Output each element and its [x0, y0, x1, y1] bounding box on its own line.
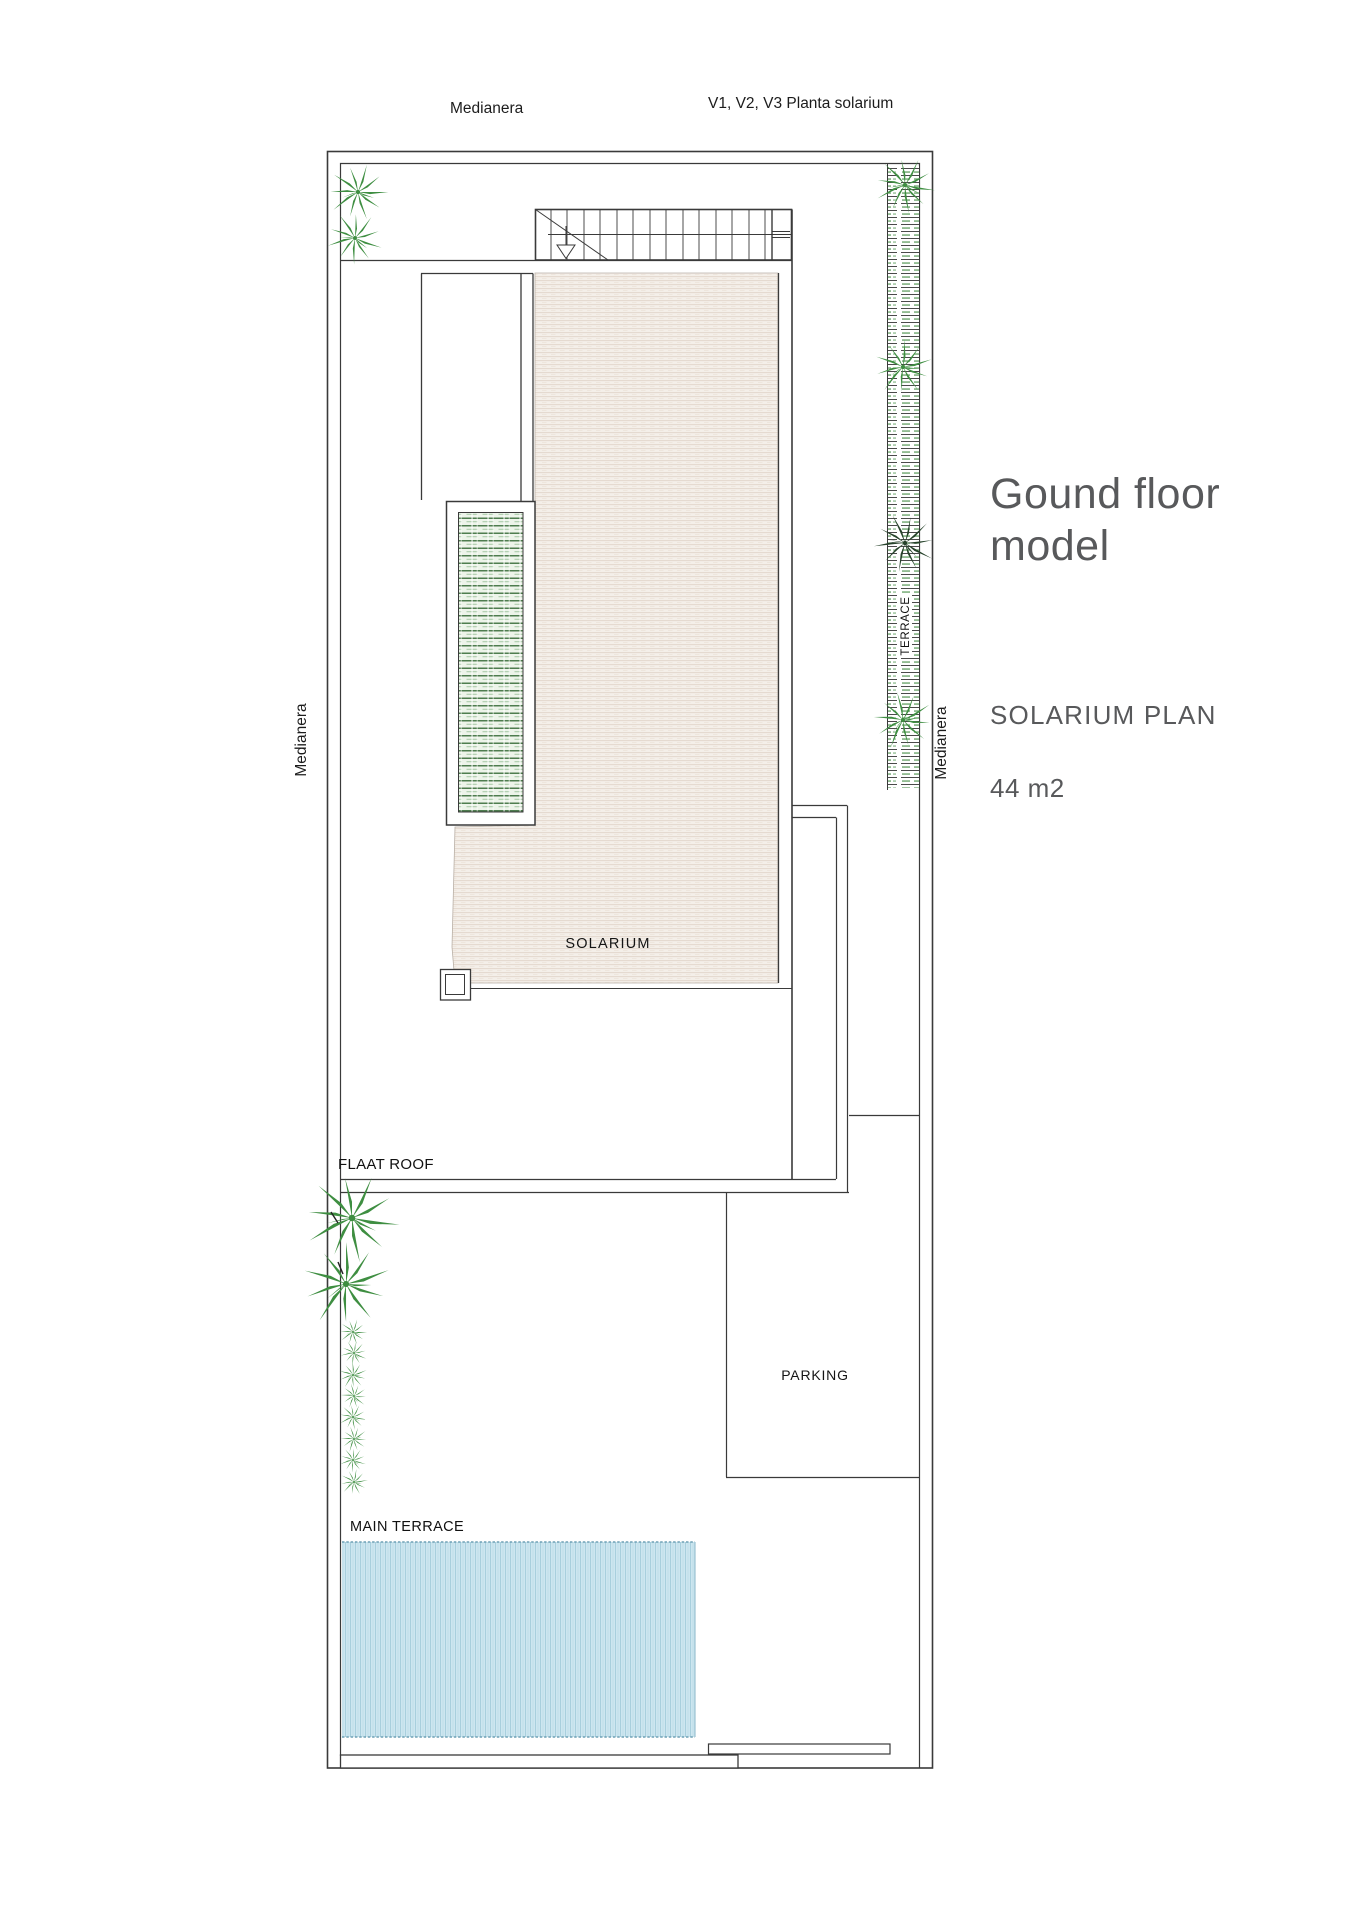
parking-label: PARKING	[781, 1367, 849, 1383]
corner-box	[441, 970, 471, 1001]
solarium-label: SOLARIUM	[565, 936, 650, 952]
stair-arrow-head	[557, 245, 575, 259]
shrub-row	[336, 1319, 372, 1496]
pergola-green-hatch	[459, 513, 524, 813]
plan-area: 44 m2	[990, 773, 1220, 804]
title-line-2: model	[990, 520, 1220, 572]
flat-roof-label: FLAAT ROOF	[338, 1156, 434, 1173]
pool	[342, 1542, 695, 1737]
palm-tree-large-icon	[295, 1232, 401, 1334]
main-terrace-label: MAIN TERRACE	[350, 1519, 464, 1535]
parking-outline	[726, 1116, 920, 1478]
right-boundary-label: Medianera	[933, 706, 951, 779]
title-block: Gound floor model SOLARIUM PLAN 44 m2	[990, 468, 1220, 804]
palm-tree-icon	[322, 206, 390, 271]
plan-subtitle: SOLARIUM PLAN	[990, 700, 1220, 731]
terrace-strip-hatch	[888, 166, 919, 788]
title-line-1: Gound floor	[990, 468, 1220, 520]
drawing-title-label: V1, V2, V3 Planta solarium	[708, 95, 893, 113]
terrace-strip	[888, 164, 920, 791]
palm-tree-large-icon	[303, 1170, 406, 1267]
left-boundary-label: Medianera	[293, 703, 311, 776]
pergola	[447, 502, 536, 826]
floor-plan-page: Medianera V1, V2, V3 Planta solarium Med…	[0, 0, 1357, 1920]
palm-tree-icon	[330, 165, 388, 219]
terrace-label: TERRACE	[900, 594, 912, 657]
floor-plan-drawing	[0, 0, 1357, 1920]
pool-water-hatch	[342, 1542, 695, 1737]
top-left-boundary-label: Medianera	[450, 100, 523, 118]
stairs	[536, 210, 793, 261]
bottom-walls	[341, 1744, 891, 1768]
